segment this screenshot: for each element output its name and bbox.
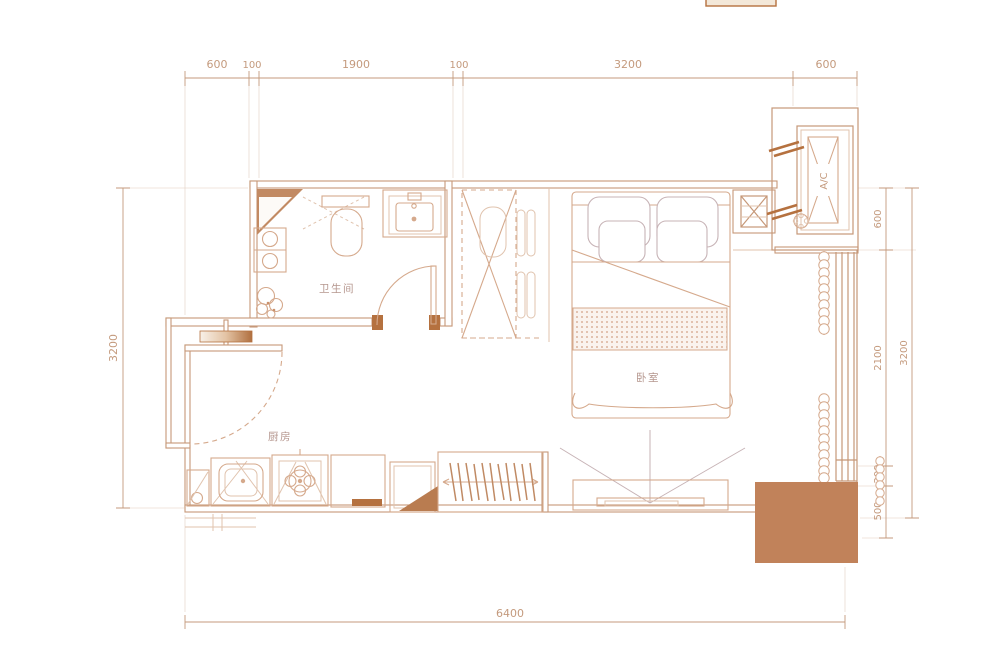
- ac-unit: A/C: [808, 137, 838, 223]
- dim-right-2100: 2100: [873, 345, 884, 370]
- laundry-unit: [254, 228, 286, 272]
- pillow-right: [657, 221, 707, 262]
- threshold-lines: [185, 514, 256, 531]
- bathroom-label: 卫生间: [319, 282, 355, 295]
- dimension-bottom: 6400: [185, 607, 845, 629]
- tv-viewing-lines: [560, 430, 745, 503]
- dim-bottom-6400: 6400: [496, 607, 524, 620]
- entry-door-leaf: [200, 331, 252, 342]
- sink-vanity: [383, 190, 447, 237]
- column: [733, 190, 775, 233]
- wall-left-connector: [166, 443, 190, 448]
- wall-entry-top: [185, 345, 282, 351]
- wall-top: [250, 181, 777, 188]
- bedroom: 卧室: [572, 192, 732, 418]
- bathroom: 卫生间: [254, 189, 447, 325]
- floorplan-canvas: 600 100 1900 100 3200 600 6400 3200 600 …: [0, 0, 1000, 666]
- hanging-clothes-lower: [517, 272, 535, 318]
- top-edge-fragment: [706, 0, 776, 6]
- corner-fill: [399, 486, 438, 511]
- dimension-left: 3200: [107, 188, 130, 508]
- solid-terrace-block: [755, 482, 858, 563]
- kitchen-sink: [211, 458, 270, 506]
- double-bed: [572, 192, 732, 418]
- dim-right-3200: 3200: [899, 340, 910, 365]
- foot-fabric: [573, 393, 733, 408]
- dimension-top: 600 100 1900 100 3200 600: [185, 58, 857, 86]
- tv-area: [560, 430, 745, 510]
- dim-top-600a: 600: [207, 58, 228, 71]
- dim-top-100b: 100: [449, 60, 468, 71]
- toilet: [303, 196, 369, 256]
- closet-cross: [462, 190, 516, 338]
- curtain-coil-outside: [876, 456, 884, 505]
- wall-left-outer: [166, 318, 171, 448]
- dim-right-600: 600: [873, 209, 884, 228]
- ac-label: A/C: [819, 172, 830, 189]
- dim-left-3200: 3200: [107, 334, 120, 362]
- hanging-clothes-upper: [517, 210, 535, 256]
- stove: [272, 449, 328, 506]
- kitchen-label: 厨房: [268, 430, 292, 443]
- wall-bathroom-bottom-left: [166, 318, 372, 326]
- closet: [462, 190, 543, 338]
- pillow-left: [599, 221, 645, 262]
- blanket-band: [573, 308, 727, 350]
- curtain-coil-lower: [819, 394, 829, 483]
- floorplan-drawing: 600 100 1900 100 3200 600 6400 3200 600 …: [0, 0, 1000, 666]
- bathroom-door: [377, 266, 436, 325]
- curtain-coil-upper: [819, 251, 829, 335]
- dim-top-3200: 3200: [614, 58, 642, 71]
- ac-platform: A/C: [767, 108, 858, 250]
- bedroom-label: 卧室: [636, 371, 660, 384]
- dim-top-600b: 600: [816, 58, 837, 71]
- plant-decor: [257, 288, 283, 319]
- dim-top-1900: 1900: [342, 58, 370, 71]
- wall-bathroom-right: [445, 181, 452, 326]
- kitchen: 厨房: [187, 430, 543, 512]
- wardrobe: [438, 452, 543, 512]
- fridge: [331, 455, 385, 507]
- dim-top-100a: 100: [242, 60, 261, 71]
